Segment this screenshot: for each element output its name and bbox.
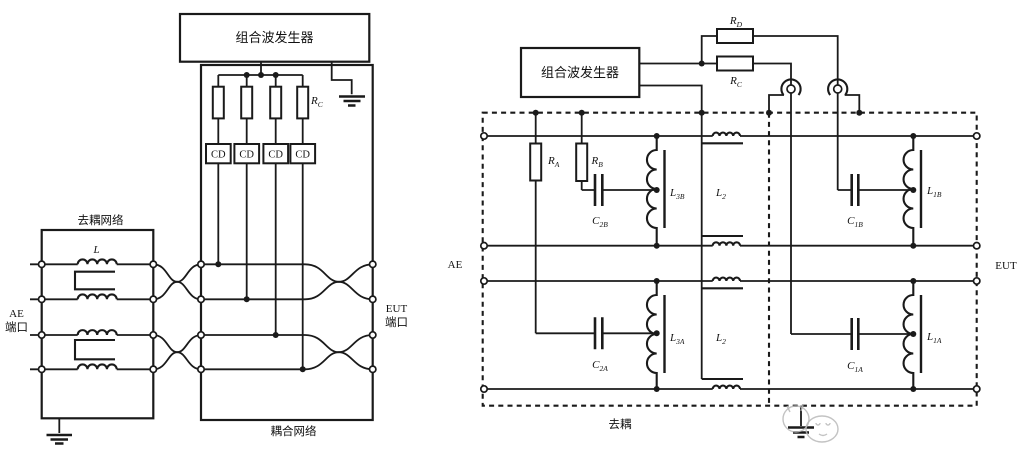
watermark-mascot bbox=[783, 405, 838, 442]
cd-arrestor-boxes: CD CD CD CD bbox=[206, 144, 315, 372]
rc-label-left: RC bbox=[310, 95, 324, 109]
l3a-label: L3A bbox=[669, 332, 685, 346]
capacitor-c2a: C2A bbox=[536, 317, 657, 373]
coupling-connectors bbox=[769, 79, 859, 334]
eut-label-right: EUT bbox=[995, 260, 1017, 272]
cd-label-3: CD bbox=[268, 150, 283, 161]
ae-port-text: AE bbox=[9, 308, 24, 320]
inductor-l1b: L1B bbox=[904, 136, 942, 246]
l2-bottom-label: L2 bbox=[715, 332, 726, 346]
c2b-label: C2B bbox=[592, 215, 608, 229]
coupling-resistors: RC bbox=[213, 87, 324, 144]
right-terminals bbox=[481, 133, 980, 392]
left-lines bbox=[30, 264, 305, 369]
l2-coil-line2 bbox=[713, 242, 740, 245]
combination-wave-generator-box-left: 组合波发生器 bbox=[180, 14, 369, 62]
rb-label: RB bbox=[591, 155, 604, 169]
left-terminals bbox=[39, 261, 376, 372]
decoupling-network-box bbox=[42, 230, 154, 418]
rd-rc-branch: RD RC bbox=[639, 15, 837, 89]
decoupling-network-label: 去耦网络 bbox=[78, 213, 124, 227]
l1a-label: L1A bbox=[926, 331, 942, 345]
decoupling-label-right: 去耦 bbox=[609, 418, 632, 431]
inductor-l-label: L bbox=[92, 244, 99, 256]
capacitor-c2b: C2B bbox=[582, 174, 657, 229]
combination-wave-generator-box-right: 组合波发生器 bbox=[521, 48, 639, 97]
rd-label: RD bbox=[729, 15, 743, 29]
capacitor-c1b: C1B bbox=[838, 174, 914, 229]
l1b-label: L1B bbox=[926, 185, 942, 199]
l2-top-label: L2 bbox=[715, 187, 726, 201]
right-junction-dots bbox=[654, 133, 917, 392]
eut-port-text: EUT bbox=[386, 303, 408, 315]
coupling-network-box bbox=[201, 65, 373, 420]
left-diagram: 组合波发生器 RC CD CD CD bbox=[5, 14, 408, 444]
inductor-l1a: L1A bbox=[904, 281, 942, 389]
l2-coil-line4 bbox=[713, 386, 740, 389]
eut-port-label: EUT 端口 bbox=[385, 303, 408, 329]
c1a-label: C1A bbox=[847, 360, 863, 374]
ground-icon-decoupling bbox=[47, 418, 73, 443]
inductor-l3a: L3A bbox=[647, 281, 685, 389]
ae-label-right: AE bbox=[448, 259, 463, 271]
ae-port-cjk: 端口 bbox=[5, 321, 28, 334]
cd-label-1: CD bbox=[211, 150, 226, 161]
l3b-label: L3B bbox=[669, 187, 685, 201]
generator-label-left: 组合波发生器 bbox=[235, 30, 313, 45]
eut-port-cjk: 端口 bbox=[385, 316, 408, 329]
generator-label-right: 组合波发生器 bbox=[541, 65, 619, 80]
decoupling-inductors: L bbox=[75, 244, 117, 369]
c2a-label: C2A bbox=[592, 359, 608, 373]
inductor-l3b: L3B bbox=[647, 136, 685, 246]
ra-label: RA bbox=[547, 155, 560, 169]
capacitor-c1a: C1A bbox=[791, 318, 913, 374]
c1b-label: C1B bbox=[847, 215, 863, 229]
ground-icon-generator bbox=[332, 62, 365, 106]
l2-coil-line3 bbox=[713, 278, 740, 281]
figure-canvas: 组合波发生器 RC CD CD CD bbox=[0, 0, 1023, 470]
coupling-network-label: 耦合网络 bbox=[271, 424, 317, 438]
right-lines bbox=[484, 133, 977, 389]
right-diagram: 组合波发生器 RD RC bbox=[448, 15, 1017, 442]
cd-label-2: CD bbox=[239, 150, 254, 161]
pair-transpositions bbox=[153, 264, 372, 369]
cd-label-4: CD bbox=[295, 150, 310, 161]
rc-label-right: RC bbox=[729, 75, 743, 89]
l2-coil-line1 bbox=[713, 133, 740, 136]
ae-port-label: AE 端口 bbox=[5, 308, 28, 334]
connector-plug-right bbox=[834, 85, 842, 93]
connector-plug-left bbox=[787, 85, 795, 93]
